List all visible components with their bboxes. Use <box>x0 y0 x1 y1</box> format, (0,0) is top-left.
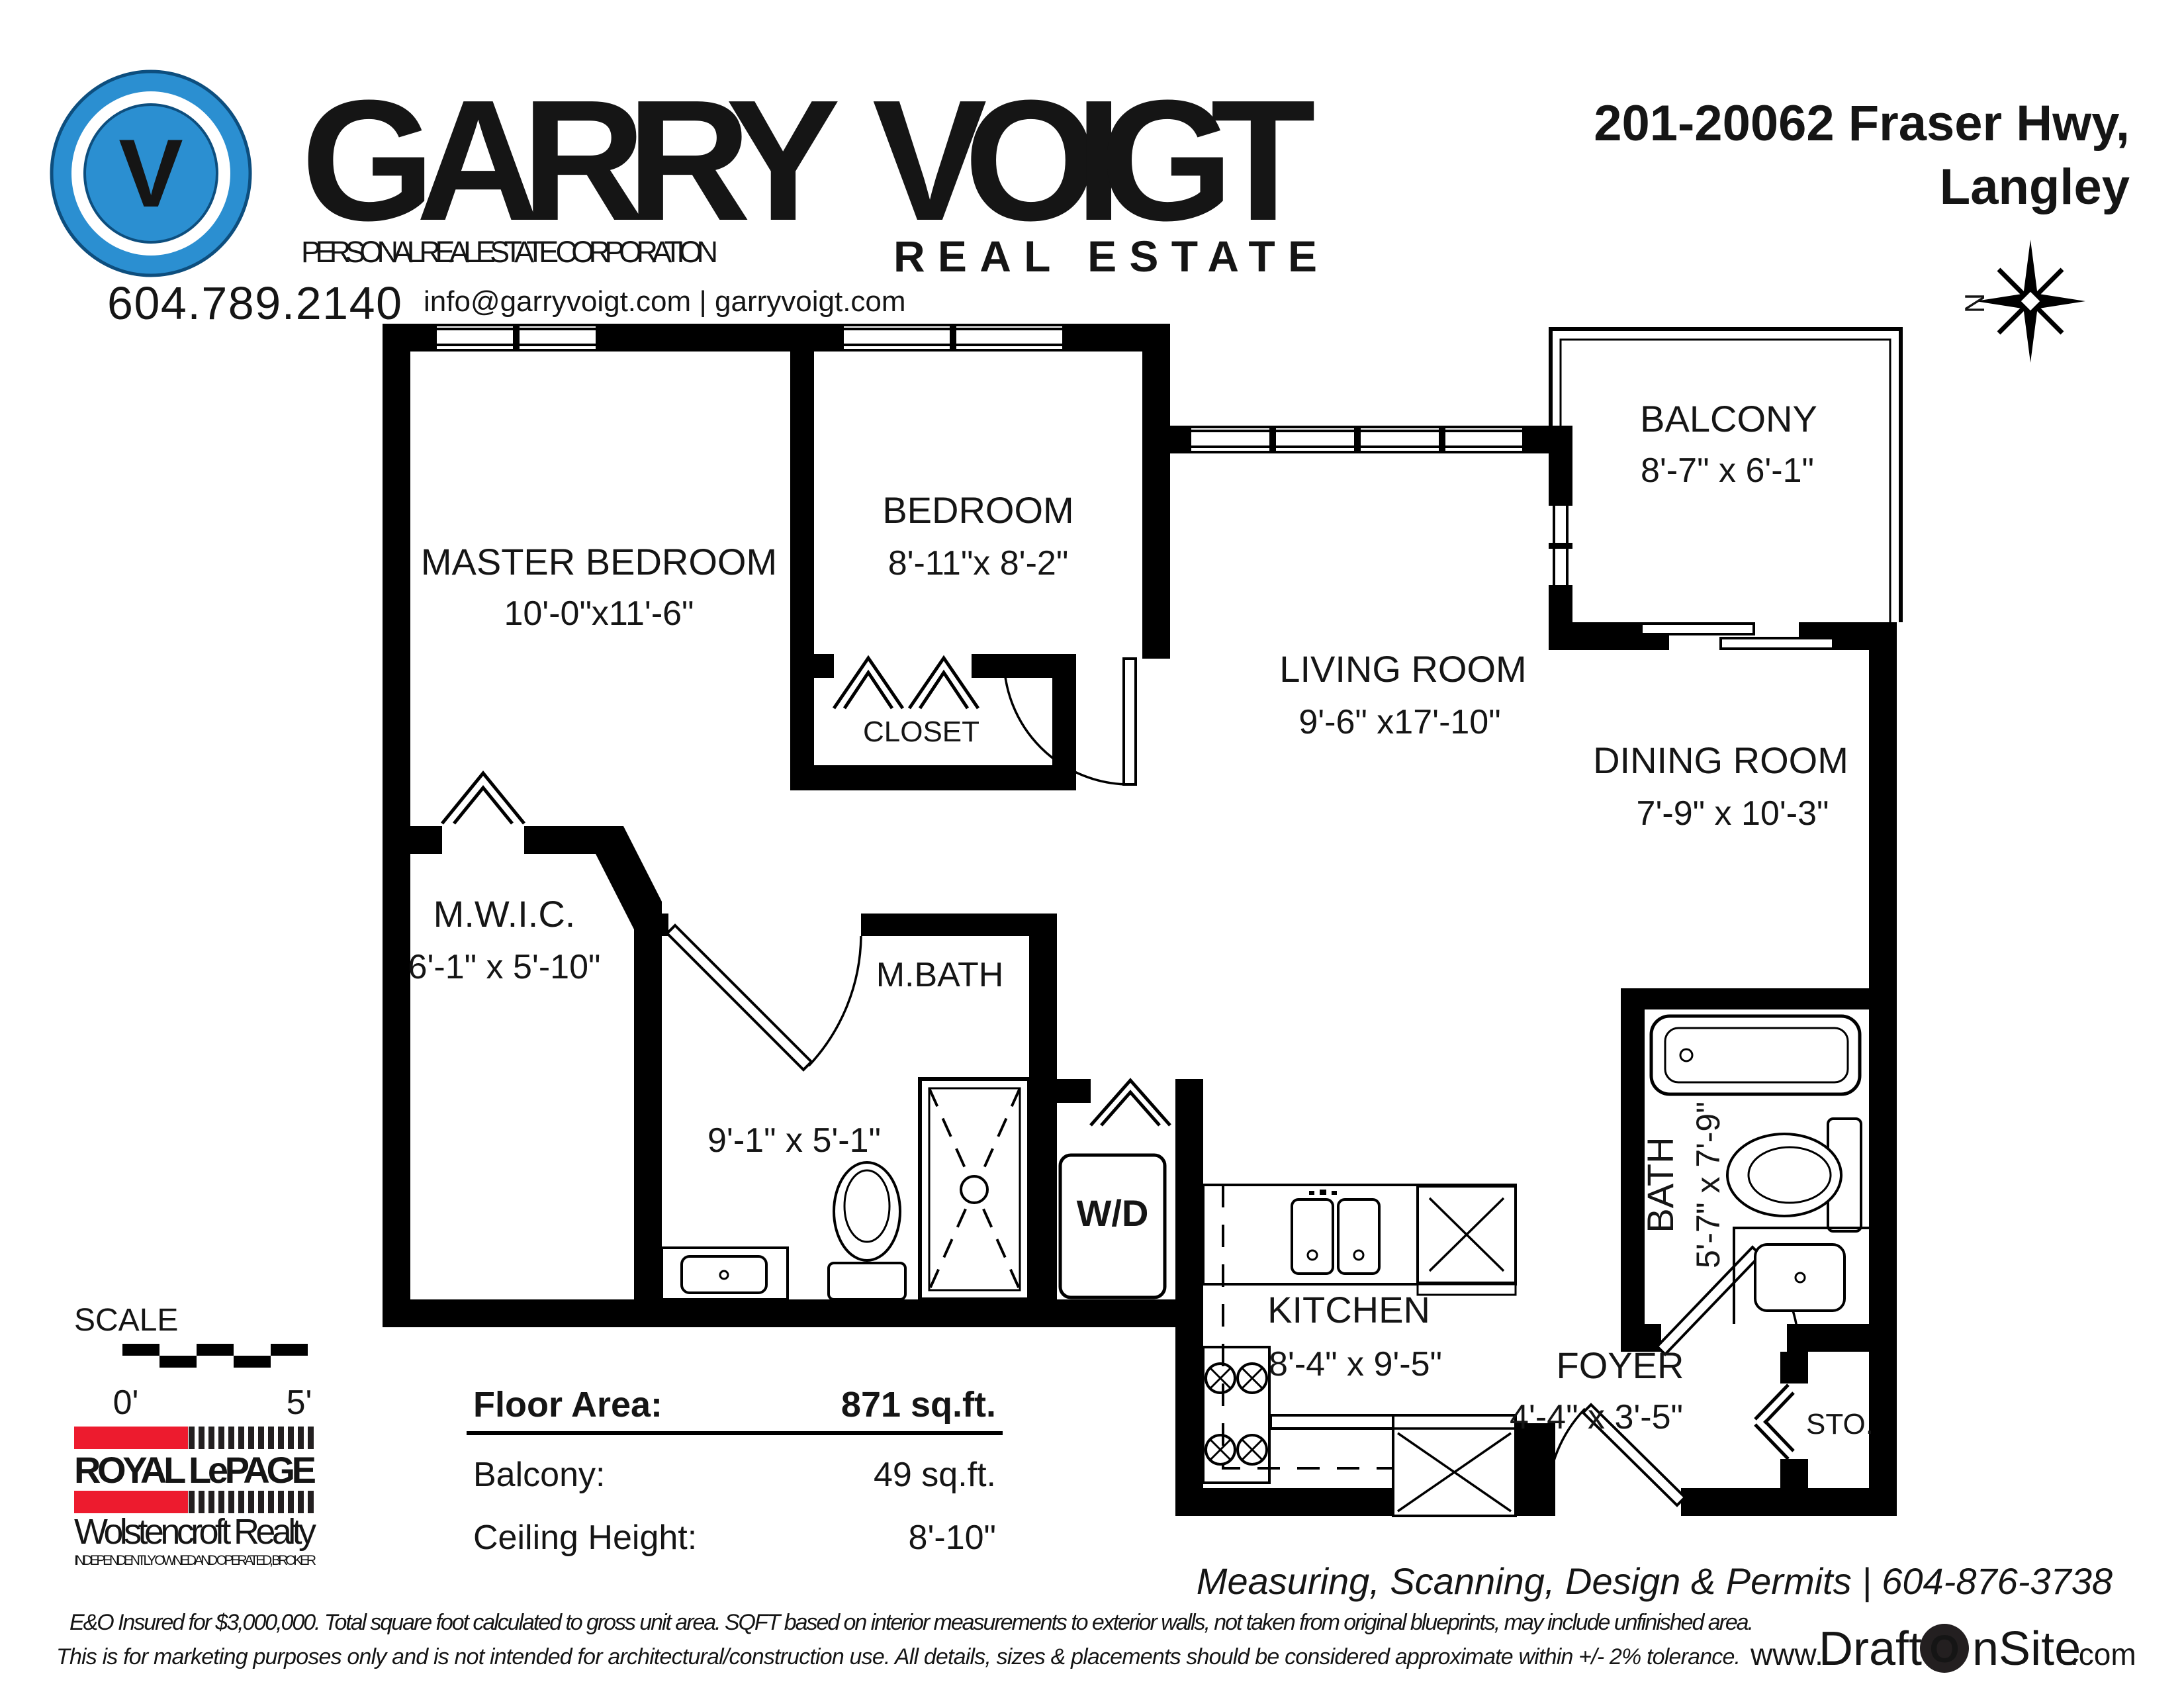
rlp-striped-bar <box>188 1491 316 1513</box>
brand-sub: PERSONAL REAL ESTATE CORPORATION <box>301 235 718 269</box>
kitchen-faucet-icon <box>1320 1190 1326 1195</box>
wall-segment <box>1175 1079 1203 1516</box>
scale-label: SCALE <box>74 1303 178 1338</box>
brand-first: GARRY <box>301 65 841 257</box>
wall-segment <box>524 826 596 854</box>
window-master <box>430 325 602 350</box>
ceiling-height-label: Ceiling Height: <box>473 1519 697 1557</box>
kitchen-counter-top <box>1203 1185 1516 1295</box>
draftonsite-logo: www. Draft O nSite .com <box>1750 1622 2136 1675</box>
room-dims-master: 10'-0"x11'-6" <box>504 594 694 633</box>
wall-segment <box>634 929 662 1299</box>
stove <box>1203 1347 1269 1483</box>
wall-segment <box>1549 426 1572 500</box>
room-label-storage: STO. <box>1806 1408 1874 1440</box>
mbath-door <box>667 925 861 1070</box>
scale-start: 0' <box>113 1383 139 1422</box>
wall-segment <box>1869 622 1897 1516</box>
balcony-area-label: Balcony: <box>473 1456 605 1494</box>
washer-dryer: W/D <box>1060 1155 1165 1297</box>
room-dims-dining: 7'-9" x 10'-3" <box>1637 794 1829 833</box>
wall-segment <box>383 324 410 1327</box>
wall-segment <box>1621 988 1897 1009</box>
closet-bifold-icon <box>909 658 978 708</box>
room-label-mwic: M.W.I.C. <box>433 893 576 935</box>
rlp-red-bar <box>74 1427 188 1449</box>
closet-bifold-icon <box>920 673 968 708</box>
scale-bar: SCALE 0' 5' <box>74 1303 312 1422</box>
area-table: Floor Area: 871 sq.ft. Balcony: 49 sq.ft… <box>467 1385 1003 1557</box>
room-dims-bedroom: 8'-11"x 8'-2" <box>888 544 1069 583</box>
wall-segment <box>790 765 1052 790</box>
kitchen-faucet-icon <box>1309 1191 1314 1195</box>
storage-bifold-icon <box>1764 1421 1794 1451</box>
address-line1: 201-20062 Fraser Hwy, <box>1594 95 2130 152</box>
wall-segment <box>383 1299 1203 1327</box>
window-living <box>1185 427 1529 452</box>
room-label-wd: W/D <box>1077 1192 1149 1234</box>
address-line2: Langley <box>1940 159 2130 215</box>
header: V GARRY VOIGT PERSONAL REAL ESTATE CORPO… <box>52 65 2130 363</box>
floorplan-sheet: V GARRY VOIGT PERSONAL REAL ESTATE CORPO… <box>0 0 2184 1688</box>
room-dims-mbath: 9'-1" x 5'-1" <box>707 1121 881 1160</box>
shower <box>920 1079 1029 1299</box>
brand-tag: REAL ESTATE <box>893 232 1317 281</box>
rlp-red-bar <box>74 1491 188 1513</box>
floor-area-value: 871 sq.ft. <box>841 1385 996 1425</box>
rlp-office: Wolstencroft Realty <box>74 1512 316 1552</box>
room-label-master: MASTER BEDROOM <box>421 541 777 583</box>
fixtures: W/D <box>662 1016 1869 1516</box>
bath-toilet <box>1727 1119 1861 1231</box>
wall-segment <box>1057 1079 1091 1103</box>
wall-segment <box>1516 1423 1555 1516</box>
wall-segment <box>1142 453 1170 659</box>
balcony-area-value: 49 sq.ft. <box>874 1456 996 1494</box>
table-rule <box>467 1431 1003 1435</box>
room-label-foyer: FOYER <box>1557 1344 1684 1386</box>
wall-segment <box>1780 1352 1808 1383</box>
disclaimer-line2: This is for marketing purposes only and … <box>56 1644 1741 1669</box>
floor-area-label: Floor Area: <box>473 1385 662 1425</box>
wall-segment <box>1780 1459 1808 1516</box>
logo-v-icon: V <box>118 119 183 227</box>
storage-bifold-icon <box>1764 1393 1794 1423</box>
room-dims-mwic: 6'-1" x 5'-10" <box>408 948 601 986</box>
site-com: .com <box>2070 1637 2136 1671</box>
services-line: Measuring, Scanning, Design & Permits | … <box>1197 1560 2113 1603</box>
site-part2: nSite <box>1972 1622 2081 1675</box>
room-label-bedroom: BEDROOM <box>882 489 1073 531</box>
compass-north-label: N <box>1959 293 1990 313</box>
wall-segment <box>972 654 1052 678</box>
room-label-kitchen: KITCHEN <box>1267 1289 1430 1331</box>
wall-segment <box>790 654 834 678</box>
kitchen-sink-basin <box>1292 1199 1333 1274</box>
window-bedroom <box>837 325 1069 350</box>
room-label-closet: CLOSET <box>863 716 979 748</box>
site-part1: Draft <box>1819 1622 1922 1675</box>
mwic-bifold-icon <box>454 788 512 823</box>
sliding-door-panel <box>1641 624 1754 634</box>
wall-segment <box>1029 914 1057 1299</box>
room-dims-foyer: 4'-4" x 3'-5" <box>1510 1398 1683 1436</box>
kitchen-sink-basin <box>1338 1199 1379 1274</box>
contact-line: info@garryvoigt.com | garryvoigt.com <box>424 285 906 318</box>
disclaimer-line1: E&O Insured for $3,000,000. Total square… <box>69 1610 1754 1635</box>
rlp-tagline: INDEPENDENTLY OWNED AND OPERATED, BROKER <box>74 1553 316 1568</box>
scale-end: 5' <box>287 1383 312 1422</box>
ceiling-height-value: 8'-10" <box>909 1519 996 1557</box>
wd-bifold-icon <box>1101 1092 1160 1125</box>
room-dims-balcony: 8'-7" x 6'-1" <box>1641 451 1814 490</box>
bath-tub <box>1651 1016 1860 1094</box>
dishwasher <box>1418 1186 1516 1295</box>
mbath-toilet <box>829 1162 905 1299</box>
wd-bifold-icon <box>1091 1080 1170 1125</box>
room-dims-living: 9'-6" x17'-10" <box>1298 703 1500 741</box>
bath-vanity-sink <box>1734 1228 1869 1324</box>
mwic-bifold-icon <box>442 773 524 823</box>
rlp-striped-bar <box>188 1427 316 1449</box>
room-label-dining: DINING ROOM <box>1593 739 1848 781</box>
closet-bifold-icon <box>844 673 892 708</box>
kitchen-faucet-icon <box>1332 1191 1337 1195</box>
room-label-mbath: M.BATH <box>876 956 1004 994</box>
wall-segment <box>790 352 814 765</box>
brand-last: VOIGT <box>872 65 1316 257</box>
room-label-living: LIVING ROOM <box>1279 648 1526 690</box>
floorplan: W/D <box>383 324 1901 1516</box>
room-dims-kitchen: 8'-4" x 9'-5" <box>1269 1345 1442 1383</box>
closet-bifold-icon <box>834 658 903 708</box>
wall-segment <box>410 826 442 854</box>
compass-icon: N <box>1959 240 2085 363</box>
phone: 604.789.2140 <box>107 277 402 329</box>
wall-segment <box>1549 591 1572 622</box>
mbath-vanity-sink <box>662 1248 788 1299</box>
site-www: www. <box>1750 1637 1823 1671</box>
site-o: O <box>1929 1628 1959 1671</box>
room-label-bath: BATH <box>1639 1137 1681 1233</box>
sliding-door-panel <box>1721 638 1833 649</box>
wall-segment <box>861 914 1057 936</box>
room-dims-bath: 5'-7" x 7'-9" <box>1690 1102 1727 1268</box>
window-balcony-side <box>1549 500 1572 591</box>
wall-segment <box>1787 1324 1897 1352</box>
garry-voigt-logo: V <box>52 71 250 275</box>
rlp-name: ROYAL LePAGE <box>74 1449 316 1491</box>
room-label-balcony: BALCONY <box>1640 398 1817 440</box>
royal-lepage-logo: ROYAL LePAGE Wolstencroft Realty INDEPEN… <box>74 1427 316 1568</box>
